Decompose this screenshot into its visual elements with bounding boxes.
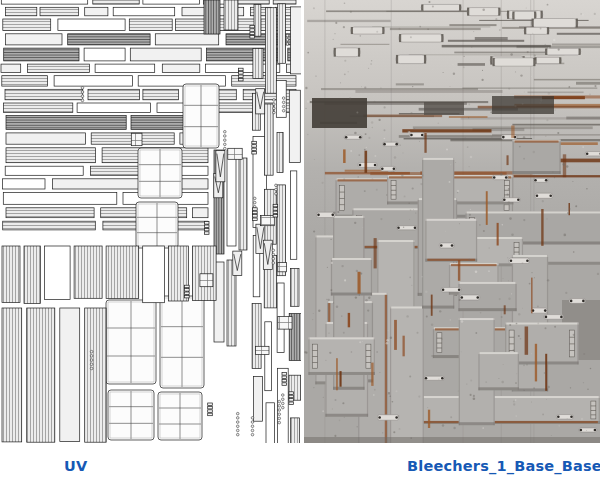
uv-map-thumbnail[interactable] [0, 0, 301, 443]
basecolor-texture-thumbnail[interactable] [304, 0, 600, 443]
concrete-texture-graphic [304, 0, 600, 443]
texture-caption: Bleechers_1_Base_BaseCol [407, 458, 600, 474]
uv-caption: UV [64, 458, 87, 474]
uv-wireframe-graphic [0, 0, 301, 443]
